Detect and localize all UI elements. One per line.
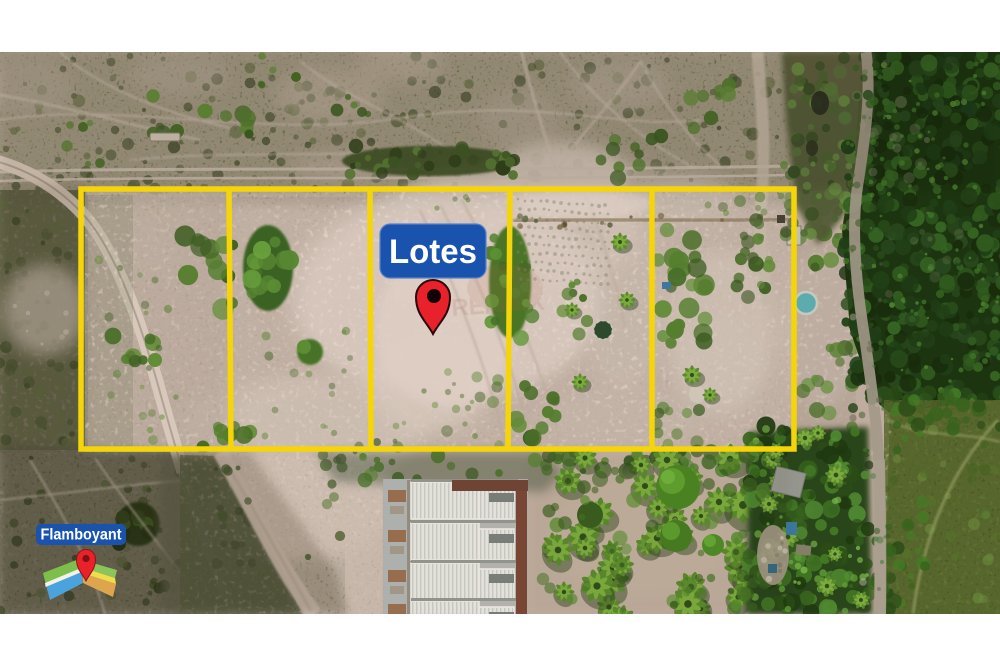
- svg-text:Flamboyant: Flamboyant: [41, 527, 122, 544]
- svg-text:Lotes: Lotes: [389, 233, 477, 271]
